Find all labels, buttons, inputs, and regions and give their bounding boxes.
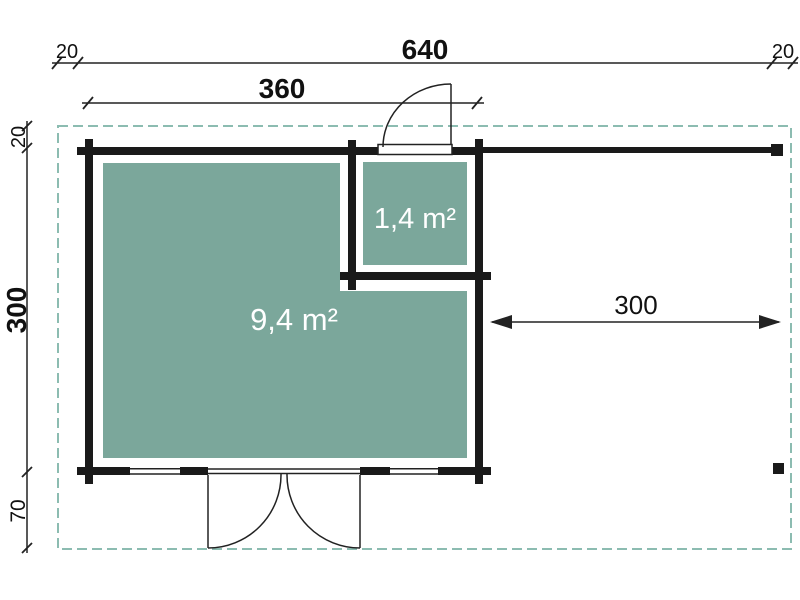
double-door-left-swing-arc	[208, 474, 281, 548]
double-door-right-swing-arc	[287, 474, 360, 548]
bottom-wall-segment	[360, 467, 390, 475]
right-wall	[475, 139, 483, 484]
terrace-post-top	[771, 144, 783, 156]
floor-plan-drawing: 640 20 20 360 20 300 70 300 9,4 m² 1,4 m…	[0, 0, 800, 600]
left-wall	[85, 139, 93, 484]
dim-overhang-top-label: 20	[8, 126, 30, 148]
terrace-beam	[483, 147, 775, 153]
partition-wall-vertical	[348, 140, 356, 290]
dim-terrace-width-label: 300	[614, 290, 657, 320]
bottom-wall-segment	[180, 467, 208, 475]
dim-overhang-front-label: 70	[7, 499, 30, 522]
dim-cabin-width-label: 360	[259, 73, 306, 104]
annex-room-area-label: 1,4 m²	[374, 203, 457, 235]
bottom-wall-segment	[77, 467, 130, 475]
floor-plan: 640 20 20 360 20 300 70 300 9,4 m² 1,4 m…	[0, 0, 800, 600]
entrance-door-swing-arc	[383, 84, 451, 147]
dim-total-width-label: 640	[402, 34, 449, 65]
arrowhead-left-icon	[490, 315, 512, 329]
partition-wall-horizontal	[340, 272, 491, 280]
bottom-wall-segment	[438, 467, 491, 475]
dim-overhang-right-label: 20	[772, 41, 794, 63]
entrance-door-sill	[378, 145, 452, 155]
terrace-post-bottom	[773, 463, 784, 474]
top-wall-left-segment	[77, 147, 378, 155]
main-room-area-label: 9,4 m²	[250, 302, 338, 337]
dim-overhang-left-label: 20	[56, 41, 78, 63]
dim-cabin-depth-label: 300	[1, 287, 32, 334]
main-room-floor-extension	[338, 291, 467, 458]
arrowhead-right-icon	[759, 315, 781, 329]
